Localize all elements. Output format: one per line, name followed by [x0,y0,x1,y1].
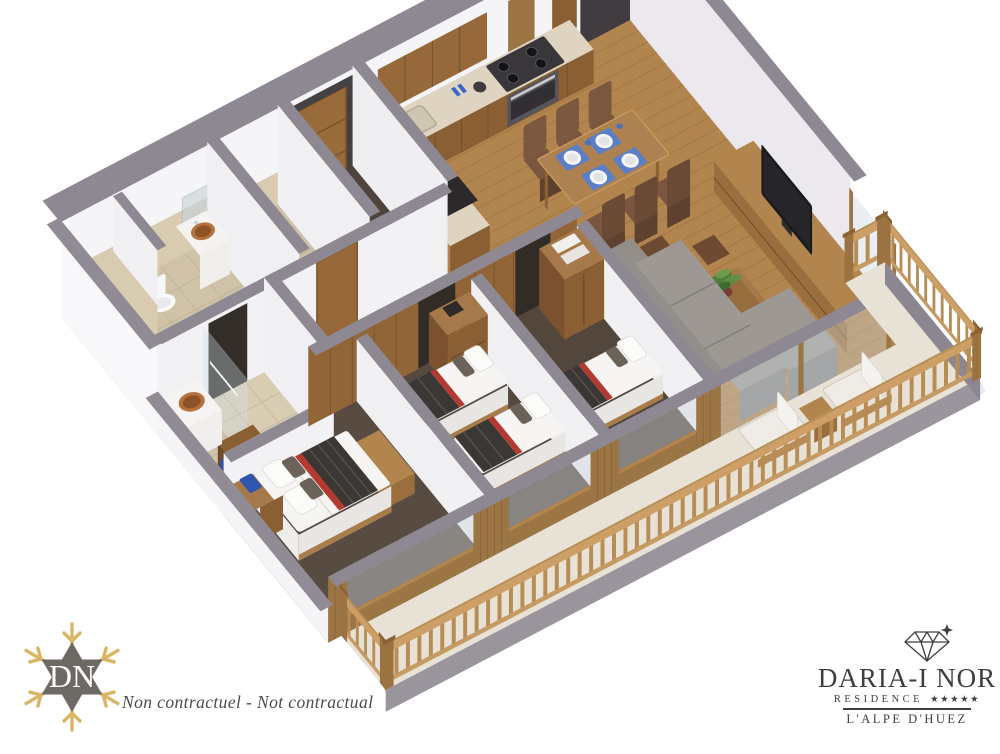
brand-name: DARIA-I NOR [816,664,998,692]
divider-rule [843,708,971,710]
brand-subtitle: RESIDENCE [834,694,923,705]
sparkle-icon [941,624,953,636]
disclaimer-text: Non contractuel - Not contractual [122,692,373,713]
monogram-letters: DN [49,658,95,694]
brand-logo: DARIA-I NOR RESIDENCE ★★★★★ L'ALPE D'HUE… [816,624,998,727]
brand-location: L'ALPE D'HUEZ [816,712,998,727]
monogram-logo: DN [16,618,128,736]
page: DN Non contractuel - Not contractual DAR… [0,0,1000,754]
diamond-icon [902,624,956,664]
five-stars: ★★★★★ [930,694,980,705]
